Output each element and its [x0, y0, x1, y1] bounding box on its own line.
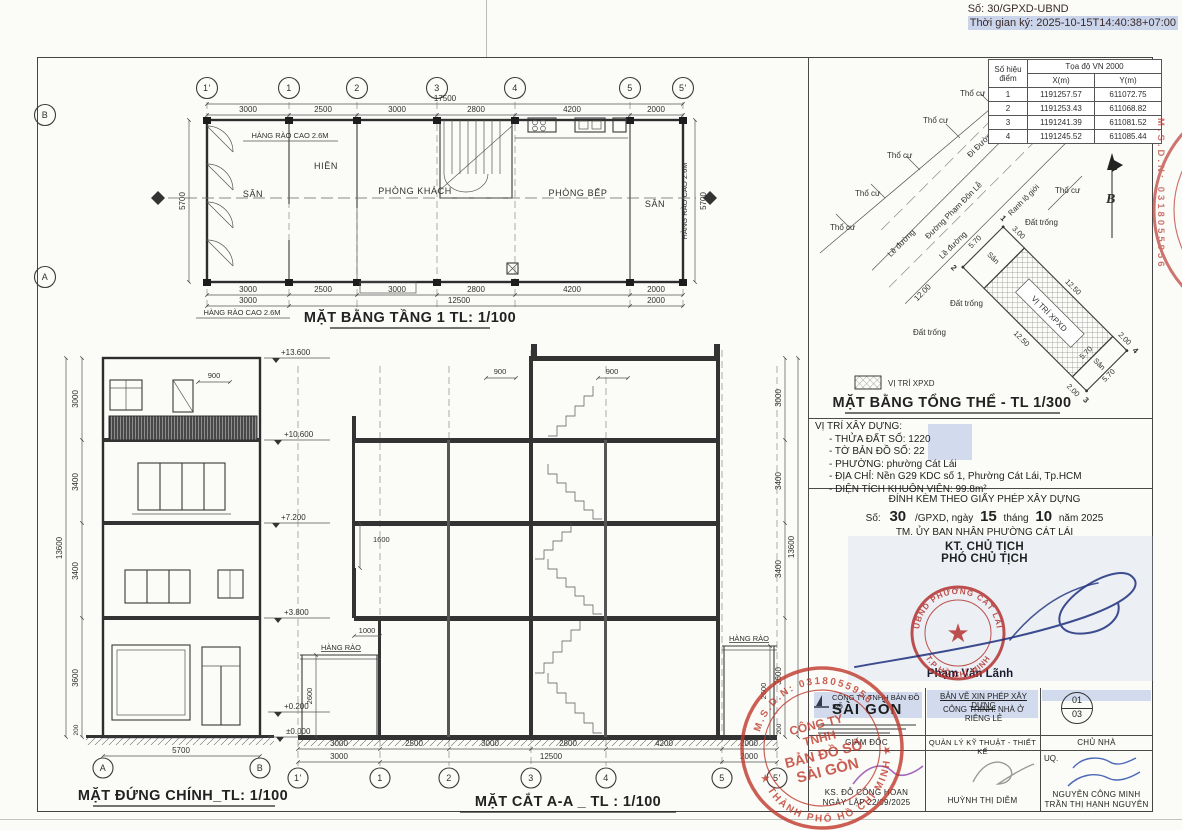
plan-dimensions: 17500 3000 2500 3000 2800 4200 2000 3000… [178, 94, 708, 306]
info-heading: VỊ TRÍ XÂY DỰNG: [815, 421, 1082, 434]
grid-label-a: A [42, 272, 49, 282]
north-arrow-icon: B [1105, 153, 1123, 238]
role-header: CHỦ NHÀ [1040, 738, 1153, 747]
info-line: - PHƯỜNG: phường Cát Lái [815, 459, 1082, 472]
dim-total: 13600 [55, 536, 64, 559]
corner-point: 2 [949, 263, 959, 273]
north-label: B [1105, 192, 1115, 207]
parcel-label: Thổ cư [887, 151, 913, 160]
corner-point: 3 [1081, 395, 1091, 405]
grid-label: 1' [203, 83, 211, 93]
col-header: Số hiệu điểm [989, 60, 1028, 88]
room-label: PHÒNG KHÁCH [378, 186, 452, 196]
grid-label: 5 [719, 773, 725, 783]
label: tháng [1004, 513, 1029, 524]
plan-walls [203, 117, 687, 286]
dim: 3000 [388, 285, 406, 294]
dim: 2500 [314, 105, 332, 114]
vacant-label: Đất trống [950, 299, 983, 308]
dim: 5700 [172, 746, 190, 755]
dim: 12500 [448, 296, 471, 305]
plan-doors-gate [207, 126, 233, 266]
elevation-section-drawing: 900 3000 3400 3400 3600 200 13600 5700 A… [28, 336, 808, 814]
owner-name-2: TRẦN THỊ HẠNH NGUYÊN [1040, 800, 1153, 809]
dim-side: 5700 [178, 192, 187, 210]
dim: 4200 [563, 105, 581, 114]
dim: 900 [494, 367, 507, 376]
dim: 12500 [540, 752, 563, 761]
room-label: SÂN [243, 189, 263, 199]
fence-label: HÀNG RÀO CAO 2.6M [203, 308, 280, 317]
level-marks: +13.600 +10.600 +7.200 +3.800 +0.200 ±0.… [264, 348, 330, 742]
cell: 4 [989, 130, 1028, 144]
room-label: HIÊN [314, 161, 338, 171]
dim: 4200 [655, 739, 673, 748]
dim: 1600 [373, 535, 390, 544]
plan-stairs [440, 120, 512, 192]
info-line: - THỬA ĐẤT SỐ: 1220 [815, 434, 1082, 447]
plan-kitchen [360, 118, 628, 293]
dim: 3000 [388, 105, 406, 114]
elevation-title: MẶT ĐỨNG CHÍNH_TL: 1/100 [78, 786, 288, 804]
vacant-label: Đất trống [1025, 218, 1058, 227]
corner-point: 1 [998, 214, 1008, 224]
permit-month: 10 [1035, 508, 1052, 525]
level-mark: +13.600 [281, 348, 311, 357]
parcel-label: Thổ cư [830, 223, 856, 232]
dim: 200 [73, 724, 80, 735]
dim: 3000 [71, 390, 80, 408]
location-info: VỊ TRÍ XÂY DỰNG: - THỬA ĐẤT SỐ: 1220 - T… [815, 421, 1082, 496]
permit-number: 30 [889, 508, 906, 525]
label: Số: [866, 513, 881, 524]
parcel-label: Thổ cư [1055, 186, 1081, 195]
level-mark: +7.200 [281, 513, 306, 522]
dim: 900 [208, 371, 221, 380]
dim: 2600 [305, 688, 314, 705]
grid-label: B [257, 763, 264, 773]
yard-label: Sân [985, 250, 1001, 266]
dim: 2000 [647, 285, 665, 294]
legend-label: VỊ TRÍ XPXD [888, 379, 935, 388]
fence-label: HÀNG RÀO [321, 643, 361, 652]
dim: 3000 [774, 389, 783, 407]
sheet-number: 01 [1062, 693, 1092, 707]
grid-label: 1' [294, 773, 302, 783]
dim: 3400 [774, 560, 783, 578]
dim: 1000 [359, 626, 376, 635]
cell: 1191245.52 [1028, 130, 1095, 144]
grid-label: 3 [434, 83, 440, 93]
edge-stamp-text: M.S.D.N: 0318055956 [1155, 118, 1166, 270]
info-line: - ĐỊA CHỈ: Nền G29 KDC số 1, Phường Cát … [815, 471, 1082, 484]
dim: 2800 [559, 739, 577, 748]
plan-title: MẶT BẰNG TẦNG 1 TL: 1/100 [304, 308, 516, 326]
permit-number-line: Số: 30 /GPXD, ngày 15 tháng 10 năm 2025 [812, 508, 1157, 525]
plan-grid-bubbles: 1' 1 2 3 4 5 5' B A [35, 78, 694, 288]
doc-sign-time: Thời gian ký: 2025-10-15T14:40:38+07:00 [968, 16, 1178, 30]
grid-label: 2 [446, 773, 452, 783]
col-header: X(m) [1028, 74, 1095, 88]
grid-label: 1 [377, 773, 383, 783]
boundary-label: Ranh lộ giới [1006, 182, 1041, 217]
grid-label: 4 [603, 773, 609, 783]
grid-label: 5 [627, 83, 633, 93]
road-label: Đường Phạm Đôn Lễ [923, 180, 984, 241]
label: /GPXD, ngày [915, 513, 973, 524]
dim: 4200 [563, 285, 581, 294]
fence-label: HÀNG RÀO [729, 634, 769, 643]
cell: 1191241.39 [1028, 116, 1095, 130]
dim: 2500 [405, 739, 423, 748]
grid-label: 4 [512, 83, 518, 93]
panel-rule-1 [808, 418, 1153, 419]
road-label: Lề đường [886, 228, 917, 259]
dim: 2500 [314, 285, 332, 294]
permit-day: 15 [980, 508, 997, 525]
dim: 3400 [71, 473, 80, 491]
level-mark: +10.600 [284, 430, 314, 439]
dim-total: 13600 [787, 535, 796, 558]
site-legend: VỊ TRÍ XPXD MẶT BẰNG TỔNG THỂ - TL 1/300 [833, 376, 1072, 413]
grid-label: 5' [679, 83, 687, 93]
dim: 2000 [647, 105, 665, 114]
doc-number: Số: 30/GPXD-UBND [968, 2, 1178, 16]
elevation-drawing: 900 3000 3400 3400 3600 200 13600 5700 A… [55, 358, 288, 806]
grid-label: 1 [286, 83, 292, 93]
dim: 3000 [481, 739, 499, 748]
grid-label: 3 [528, 773, 534, 783]
scanned-permit-sheet: { "header":{"so":"Số: 30/GPXD-UBND","tim… [0, 0, 1182, 830]
company-stamp: M.S.D.N: 0318055956 ★ THÀNH PHỐ HỒ CHÍ M… [734, 660, 914, 830]
cell: 1191257.57 [1028, 88, 1095, 102]
dim: 2000 [647, 296, 665, 305]
dim: 3000 [239, 105, 257, 114]
dim-total-top: 17500 [434, 94, 457, 103]
room-label: SÂN [645, 199, 665, 209]
grid-label: A [100, 763, 107, 773]
dim: 5.70 [967, 233, 984, 250]
parcel-label: Thổ cư [960, 89, 986, 98]
level-mark: +3.800 [284, 608, 309, 617]
grid-label: 2 [354, 83, 360, 93]
fence-label: HÀNG RÀO CAO 2.6M [680, 162, 689, 239]
room-label: PHÒNG BẾP [549, 188, 608, 198]
cell: 1 [989, 88, 1028, 102]
attach-line: ĐÍNH KÈM THEO GIẤY PHÉP XÂY DỰNG [812, 494, 1157, 505]
cell: 3 [989, 116, 1028, 130]
dim: 3400 [774, 472, 783, 490]
site-plan-title: MẶT BẰNG TỔNG THỂ - TL 1/300 [833, 393, 1072, 411]
dim: 2800 [467, 105, 485, 114]
section-drawing: 900 900 1600 1000 HÀNG RÀO 2600 HÀNG RÀO… [288, 344, 798, 812]
label: năm 2025 [1059, 513, 1103, 524]
designer-name: HUỲNH THỊ DIỄM [925, 796, 1040, 805]
floor-plan-drawing: 1' 1 2 3 4 5 5' B A 17500 3000 2500 3000… [28, 58, 808, 336]
dim: 3000 [239, 296, 257, 305]
sheet-number-badge: 01 03 [1061, 692, 1093, 724]
cell: 2 [989, 102, 1028, 116]
cell: 1191253.43 [1028, 102, 1095, 116]
digital-signature-header: Số: 30/GPXD-UBND Thời gian ký: 2025-10-1… [968, 2, 1178, 30]
fold-mark [486, 0, 487, 57]
parcel-label: Thổ cư [923, 116, 949, 125]
yard-label: Sân [1091, 356, 1107, 372]
dim: 12.00 [912, 282, 933, 303]
fence-label: HÀNG RÀO CAO 2.6M [251, 131, 328, 140]
dim: 3000 [330, 752, 348, 761]
edge-stamp-fragment: M.S.D.N: 0318055956 [1128, 78, 1182, 348]
dim: 3600 [71, 669, 80, 687]
section-title: MẶT CẮT A-A _ TL : 1/100 [475, 792, 661, 810]
sheet-total: 03 [1062, 707, 1092, 721]
parcel-label: Thổ cư [855, 189, 881, 198]
dim: 900 [606, 367, 619, 376]
dim: 3400 [71, 562, 80, 580]
grid-label-b: B [42, 110, 49, 120]
sheet-edge-shadow [0, 819, 1182, 820]
level-mark: ±0.000 [286, 727, 311, 736]
dim: 3000 [239, 285, 257, 294]
info-line: - TỜ BẢN ĐỒ SỐ: 22 [815, 446, 1082, 459]
col-header: Tọa độ VN 2000 [1028, 60, 1162, 74]
vacant-label: Đất trống [913, 328, 946, 337]
dim: 2800 [467, 285, 485, 294]
tm-line: TM. ỦY BAN NHÂN PHƯỜNG CÁT LÁI [812, 527, 1157, 538]
plan-room-labels: SÂN HIÊN PHÒNG KHÁCH PHÒNG BẾP SÂN HÀNG … [196, 131, 665, 318]
project-name: CÔNG TRÌNH: NHÀ Ở RIÊNG LẺ [930, 705, 1037, 723]
dim: 3000 [330, 739, 348, 748]
